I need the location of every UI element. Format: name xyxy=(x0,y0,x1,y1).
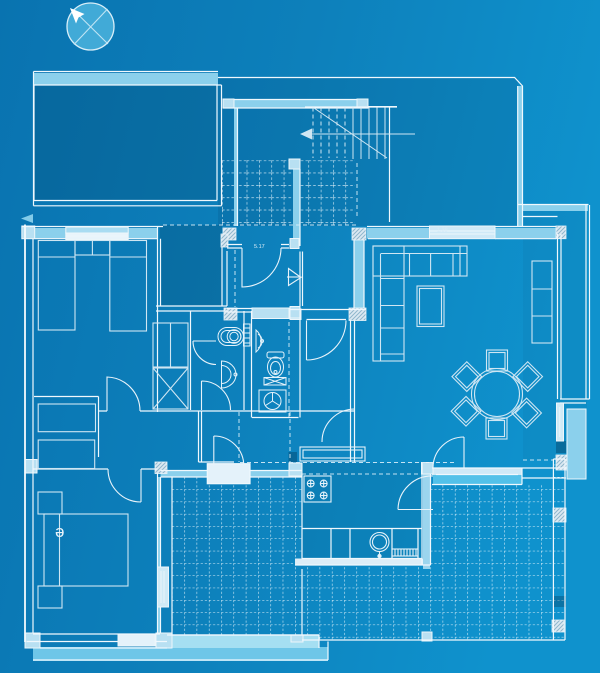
svg-text:ə: ə xyxy=(55,522,64,541)
svg-text:5.17: 5.17 xyxy=(254,244,265,250)
svg-text:1.38: 1.38 xyxy=(437,228,448,234)
